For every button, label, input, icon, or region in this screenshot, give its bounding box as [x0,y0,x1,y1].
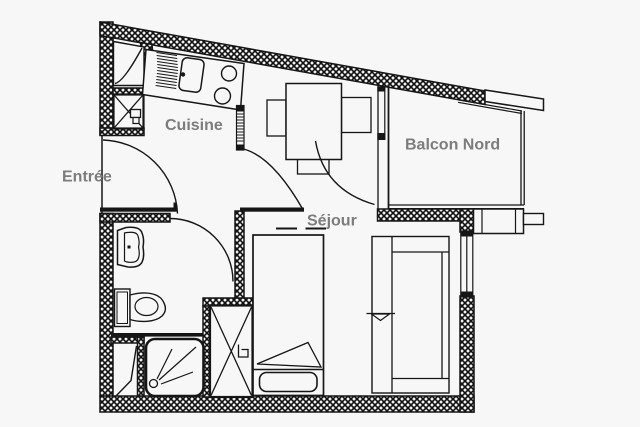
svg-text:Séjour: Séjour [307,213,357,230]
svg-text:Cuisine: Cuisine [165,117,223,134]
svg-text:Balcon Nord: Balcon Nord [405,137,500,154]
svg-text:Entrée: Entrée [62,169,112,186]
